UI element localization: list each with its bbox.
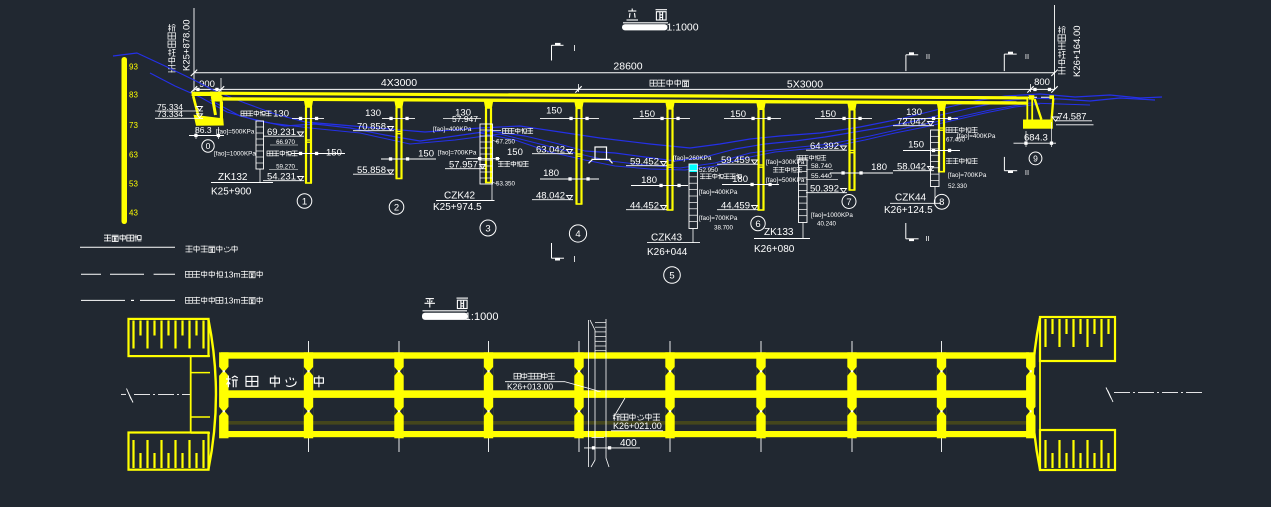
svg-text:II: II [925,234,929,243]
svg-text:1: 1 [302,196,307,207]
svg-text:K26+124.5: K26+124.5 [884,205,933,216]
svg-text:II: II [926,52,930,61]
svg-text:73.334: 73.334 [157,109,183,119]
svg-text:K25+900: K25+900 [211,187,252,198]
svg-text:8: 8 [939,197,944,208]
svg-text:4: 4 [575,229,580,240]
svg-text:63: 63 [129,151,138,160]
svg-text:K26+013.00: K26+013.00 [507,381,553,391]
svg-text:7: 7 [846,197,851,208]
svg-text:9: 9 [1033,154,1038,164]
svg-text:28600: 28600 [613,61,642,73]
svg-text:5: 5 [669,270,674,281]
svg-text:57.947: 57.947 [452,114,478,124]
svg-text:K25+878.00: K25+878.00 [182,19,193,71]
svg-text:93: 93 [129,63,138,72]
svg-text:180: 180 [641,175,657,186]
svg-text:[fao]=500KPa: [fao]=500KPa [216,129,255,136]
svg-text:130: 130 [273,109,289,120]
svg-text:II: II [1025,168,1029,177]
svg-text:800: 800 [1034,77,1050,88]
svg-text:13m: 13m [224,270,241,280]
svg-text:K26+080: K26+080 [754,244,795,255]
svg-text:[fao]=1000KPa: [fao]=1000KPa [214,151,256,158]
svg-text:CZK43: CZK43 [651,233,683,244]
svg-text:CZK42: CZK42 [444,190,476,201]
svg-text:[fao]=700KPa: [fao]=700KPa [699,215,738,222]
svg-text:CZK44: CZK44 [895,193,927,204]
svg-text:53: 53 [129,180,138,189]
svg-text:86.3: 86.3 [195,125,212,135]
svg-text:[fao]=260KPa: [fao]=260KPa [673,155,712,162]
svg-text:73: 73 [129,121,138,130]
svg-text:ZK133: ZK133 [764,227,794,238]
svg-text:II: II [1025,52,1029,61]
svg-text:[fao]=700KPa: [fao]=700KPa [948,172,987,179]
svg-text:I: I [573,254,575,264]
svg-text:K26+164.00: K26+164.00 [1072,25,1083,77]
svg-text:83: 83 [129,91,138,100]
svg-text:[fao]=400KPa: [fao]=400KPa [433,126,472,133]
svg-text:58.740: 58.740 [811,163,832,170]
svg-text:K26+044: K26+044 [647,247,688,258]
svg-text:55.440: 55.440 [811,173,832,180]
svg-text:1:1000: 1:1000 [465,311,499,323]
svg-text:[fao]=400KPa: [fao]=400KPa [957,133,996,140]
svg-text:67.250: 67.250 [496,139,515,146]
svg-text:[fao]=1000KPa: [fao]=1000KPa [811,212,853,219]
svg-text:1:1000: 1:1000 [667,22,699,34]
svg-text:150: 150 [326,148,342,159]
svg-text:150: 150 [507,147,523,158]
svg-text:150: 150 [418,149,434,160]
svg-text:3: 3 [485,223,490,234]
svg-text:5X3000: 5X3000 [787,79,823,91]
svg-text:2: 2 [394,202,399,213]
svg-text:40.240: 40.240 [817,221,836,228]
svg-text:[fao]=400KPa: [fao]=400KPa [699,189,738,196]
svg-text:K25+974.5: K25+974.5 [433,202,482,213]
svg-text:13m: 13m [224,296,241,306]
svg-text:[fao]=700KPa: [fao]=700KPa [438,150,477,157]
svg-text:ZK132: ZK132 [218,172,248,183]
svg-text:4X3000: 4X3000 [381,77,417,89]
svg-text:38.700: 38.700 [714,225,733,232]
svg-text:130: 130 [365,108,381,119]
svg-text:150: 150 [546,106,562,117]
svg-text:K26+021.00: K26+021.00 [613,421,662,431]
svg-text:180: 180 [871,162,887,173]
svg-text:53.350: 53.350 [496,181,515,188]
svg-text:43: 43 [129,209,138,218]
svg-text:0: 0 [206,141,211,151]
svg-text:52.330: 52.330 [948,183,967,190]
svg-text:52.950: 52.950 [699,167,718,174]
svg-text:150: 150 [908,140,924,151]
svg-text:I: I [573,43,575,53]
svg-text:400: 400 [620,438,637,449]
svg-text:180: 180 [543,168,559,179]
svg-text:180: 180 [732,174,748,185]
svg-text:6: 6 [755,219,760,230]
